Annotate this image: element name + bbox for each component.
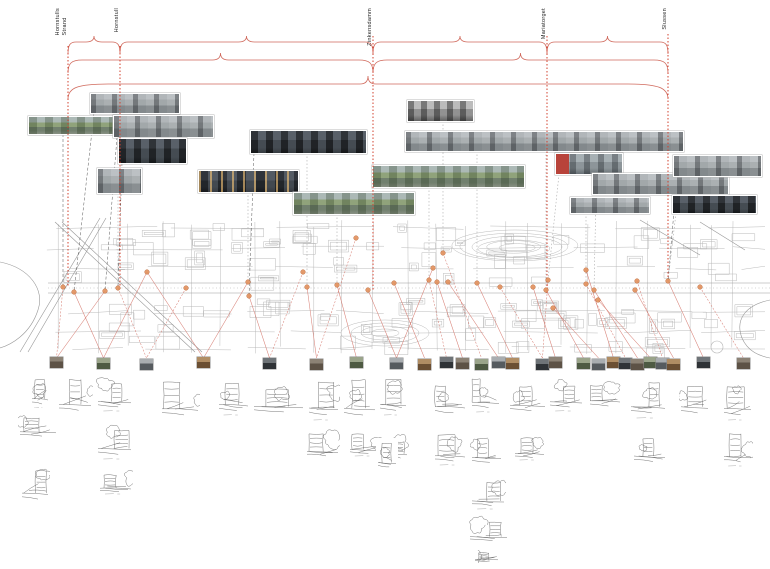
- sketch-drawing: [470, 372, 501, 414]
- thumbnail-photo: [440, 357, 453, 368]
- photo-strip: [293, 192, 415, 215]
- sketch-drawing: [160, 375, 200, 422]
- sketch-drawing: [632, 425, 667, 468]
- thumbnail-photo: [506, 358, 519, 369]
- sketch-drawing: [433, 427, 467, 467]
- photo-strip: [407, 100, 474, 122]
- sketch-drawing: [473, 550, 500, 563]
- thumbnail-photo: [97, 358, 110, 369]
- sketch-drawing: [305, 427, 340, 461]
- urban-analysis-board: Hornstulls StrandHornstullZinkensdammMar…: [0, 0, 770, 569]
- photo-strip: [118, 138, 187, 164]
- sketch-drawing: [468, 515, 509, 545]
- thumbnail-photo: [577, 358, 590, 369]
- thumbnail-photo: [263, 358, 276, 369]
- thumbnail-photo: [140, 359, 153, 370]
- sketch-drawing: [433, 372, 467, 420]
- thumbnail-photo: [475, 359, 488, 370]
- photo-strip: [90, 93, 180, 114]
- station-label-zinkensdamm: Zinkensdamm: [367, 8, 374, 46]
- photo-strip: [372, 165, 525, 188]
- thumbnail-photo: [310, 359, 323, 370]
- sketch-drawing: [98, 468, 133, 496]
- sketch-drawing: [20, 460, 50, 506]
- sketch-drawing: [252, 377, 305, 418]
- photo-strip: [97, 168, 142, 194]
- sketch-drawing: [96, 416, 133, 461]
- photo-strip: [28, 116, 123, 135]
- station-label-hornstulls-strand: Hornstulls Strand: [55, 8, 69, 35]
- sketch-drawing: [342, 370, 377, 423]
- sketch-drawing: [508, 375, 547, 417]
- photo-strip: [250, 130, 367, 154]
- thumbnail-photo: [390, 358, 403, 369]
- thumbnail-photo: [350, 357, 363, 368]
- photo-strip: [672, 195, 757, 214]
- thumbnail-photo: [197, 357, 210, 368]
- sketch-drawing: [217, 373, 250, 417]
- sketch-drawing: [18, 408, 58, 441]
- thumbnail-photo: [631, 359, 644, 370]
- station-label-hornstull: Hornstull: [114, 8, 121, 32]
- sketch-drawing: [57, 372, 93, 417]
- thumbnail-photo: [737, 358, 750, 369]
- sketch-drawing: [588, 372, 622, 412]
- thumbnail-photo: [492, 357, 505, 368]
- thumbnail-photo: [667, 359, 680, 370]
- thumbnail-photo: [50, 357, 63, 368]
- sketch-drawing: [629, 373, 667, 420]
- thumbnail-photo: [536, 359, 549, 370]
- sketch-drawing: [548, 373, 584, 413]
- sketch-drawing: [470, 475, 506, 511]
- sketch-drawing: [376, 438, 398, 472]
- thumbnail-photo: [592, 359, 605, 370]
- thumbnail-photo: [697, 357, 710, 368]
- sketch-drawing: [470, 430, 503, 468]
- photo-strip: [405, 131, 684, 152]
- photo-strip: [673, 155, 762, 177]
- sketch-drawing: [722, 427, 753, 468]
- photo-strip: [555, 153, 623, 175]
- sketch-drawing: [30, 370, 50, 410]
- thumbnail-photo: [418, 359, 431, 370]
- sketch-drawing: [722, 373, 753, 422]
- station-label-mariatorget: Mariatorget: [541, 8, 548, 39]
- sketch-drawing: [513, 432, 546, 462]
- sketch-drawing: [307, 372, 340, 422]
- station-label-slussen: Slussen: [662, 8, 669, 30]
- photo-strip: [113, 115, 214, 138]
- thumbnail-photo: [456, 358, 469, 369]
- sketch-drawing: [96, 372, 133, 413]
- thumbnail-photo: [549, 357, 562, 368]
- sketch-drawing: [378, 372, 408, 417]
- sketch-drawing: [679, 373, 710, 420]
- photo-strip: [570, 197, 650, 214]
- photo-strip: [198, 170, 299, 193]
